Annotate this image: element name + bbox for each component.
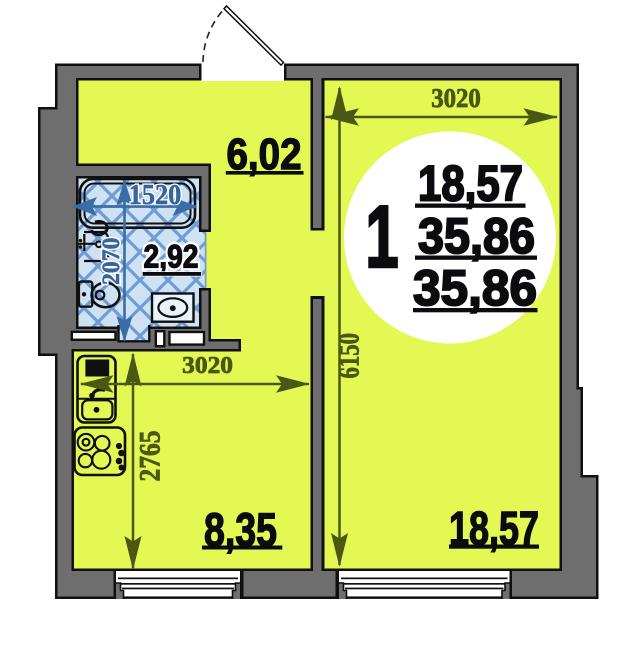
svg-text:2765: 2765: [134, 431, 167, 482]
svg-text:1: 1: [365, 187, 398, 285]
svg-text:2070: 2070: [98, 238, 125, 286]
svg-text:6150: 6150: [333, 333, 366, 379]
svg-text:3020: 3020: [431, 82, 481, 113]
svg-text:3020: 3020: [182, 352, 233, 379]
svg-text:2,92: 2,92: [144, 239, 199, 275]
svg-text:18,57: 18,57: [418, 156, 523, 212]
svg-text:35,86: 35,86: [413, 260, 537, 316]
